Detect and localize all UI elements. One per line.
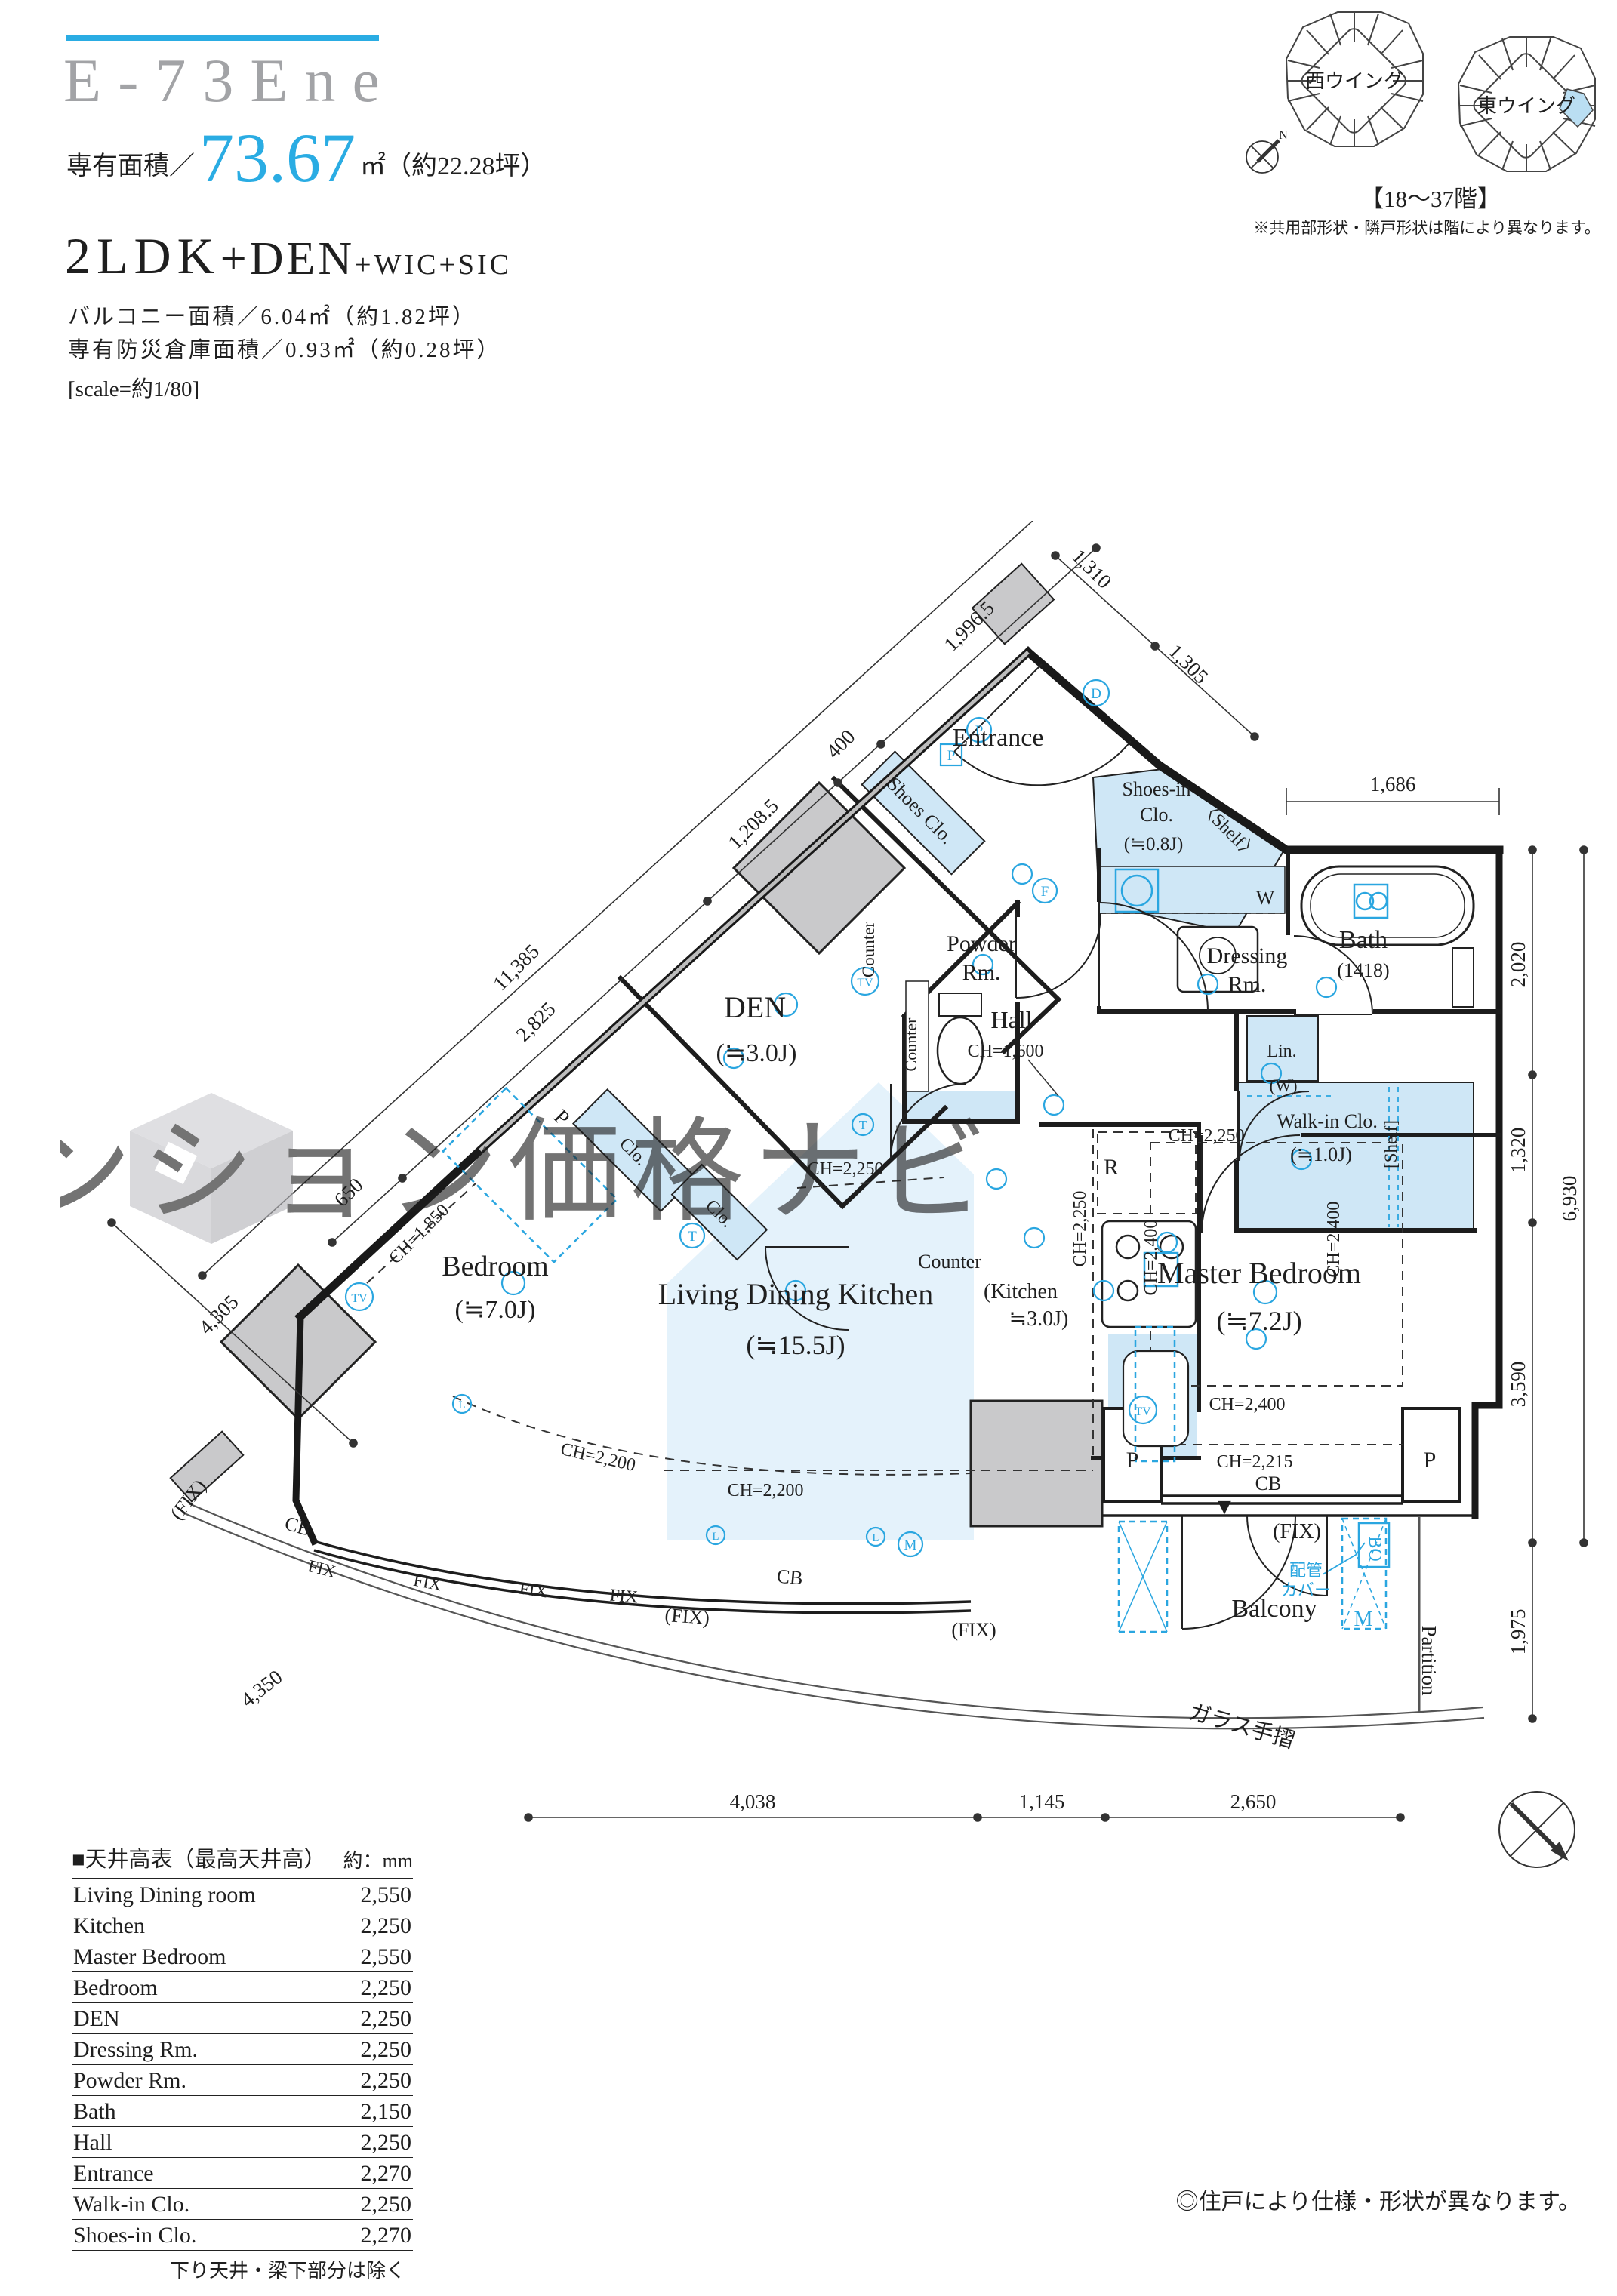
pipe-cover-label2: カバー [1281, 1580, 1331, 1599]
ch-hall: CH=1,600 [968, 1042, 1044, 1061]
keyplan-north-label: N [1279, 129, 1288, 142]
table-row: Shoes-in Clo.2,270 [72, 2220, 413, 2251]
pipe-cover-label: 配管 [1289, 1561, 1323, 1580]
dim-1310: 1,310 [1067, 545, 1116, 593]
row-label: Walk-in Clo. [73, 2192, 189, 2217]
dim-4038: 4,038 [730, 1790, 776, 1813]
east-wing-label: 東ウイング [1477, 95, 1575, 117]
ldk-label: Living Dining Kitchen [658, 1277, 933, 1311]
table-title: ■天井高表（最高天井高） [72, 1842, 326, 1873]
walk-in-clo-size: (≒1.0J) [1290, 1143, 1352, 1165]
m-circle-icon: M [904, 1537, 917, 1553]
fix-window: FIX [518, 1579, 549, 1602]
master-bedroom-size: (≒7.2J) [1216, 1306, 1301, 1336]
bath-size-label: (1418) [1337, 959, 1389, 981]
table-row: DEN2,250 [72, 2003, 413, 2034]
ceiling-height-table: ■天井高表（最高天井高） 約：mm Living Dining room2,55… [72, 1840, 413, 2283]
row-value: 2,550 [361, 1882, 412, 1907]
bedroom-label: Bedroom [442, 1251, 548, 1282]
dim-2825: 2,825 [512, 998, 560, 1046]
table-row: Bath2,150 [72, 2096, 413, 2127]
fix-window: FIX [306, 1556, 337, 1581]
ch-ldk: CH=2,200 [728, 1481, 804, 1500]
t-circle-icon: T [688, 1229, 697, 1245]
l-icon: L [458, 1399, 465, 1411]
ldk-size-label: (≒15.5J) [746, 1330, 845, 1360]
powder-counter-label: Counter [901, 1017, 920, 1072]
fix-window: (FIX) [951, 1619, 996, 1641]
cb-mark: CB [776, 1565, 804, 1590]
ch-master-right: CH=2,400 [1324, 1202, 1344, 1278]
ch-bedroom: CH=2,200 [559, 1439, 637, 1476]
row-label: Bedroom [73, 1975, 158, 2000]
bo-label: BO [1365, 1536, 1384, 1561]
dressing-room-label: Dressing [1207, 943, 1288, 968]
row-label: Shoes-in Clo. [73, 2223, 196, 2248]
ch-master-low: CH=2,215 [1217, 1452, 1293, 1472]
den-counter-label: Counter [859, 922, 878, 977]
fix-window: (FIX) [1273, 1520, 1321, 1543]
pillar-mark: P [1126, 1448, 1139, 1473]
balcony-area-line: バルコニー面積／6.04㎡（約1.82坪） [68, 299, 476, 331]
row-value: 2,250 [361, 2037, 412, 2062]
partition-label: Partition [1418, 1626, 1440, 1696]
walk-in-closet [1238, 1082, 1474, 1229]
row-label: Hall [73, 2130, 112, 2155]
compass-icon [1499, 1792, 1575, 1867]
pillar-mark: P [1424, 1448, 1437, 1473]
pillar [971, 1401, 1102, 1526]
table-row: Bedroom2,250 [72, 1972, 413, 2003]
shelf-sq-label: [Shelf] [1381, 1120, 1400, 1168]
bath-label: Bath [1339, 926, 1388, 954]
ldk-counter-label: Counter [918, 1251, 981, 1273]
l-icon: L [872, 1532, 879, 1544]
tv-icon: TV [351, 1292, 368, 1305]
dim-1686: 1,686 [1370, 773, 1416, 796]
area-value: 73.67 [199, 127, 356, 189]
dim-3590: 3,590 [1507, 1362, 1529, 1408]
row-value: 2,250 [361, 2068, 412, 2093]
area-label: 専有面積／ [66, 145, 195, 189]
table-header: ■天井高表（最高天井高） 約：mm [72, 1840, 413, 1879]
kitchen-sink [1123, 1351, 1188, 1446]
ch-master-left: CH=2,400 [1141, 1220, 1161, 1296]
tv-icon: TV [1135, 1405, 1151, 1418]
powder-room-label: Powder [947, 931, 1016, 956]
bedroom-size-label: (≒7.0J) [455, 1296, 536, 1324]
shoes-in-clo-size: (≒0.8J) [1124, 834, 1184, 854]
layout-plus-den: +DEN [220, 232, 355, 286]
entrance-label: Entrance [953, 724, 1044, 752]
table-row: Walk-in Clo.2,250 [72, 2189, 413, 2220]
layout-line: 2LDK +DEN +WIC+SIC [65, 226, 512, 286]
dim-1320: 1,320 [1507, 1128, 1529, 1174]
layout-main: 2LDK [65, 226, 220, 286]
row-label: Dressing Rm. [73, 2037, 198, 2062]
row-label: Kitchen [73, 1913, 145, 1938]
row-value: 2,250 [361, 2192, 412, 2217]
row-label: Powder Rm. [73, 2068, 186, 2093]
table-row: Kitchen2,250 [72, 1910, 413, 1941]
dim-400: 400 [822, 725, 860, 763]
footer-note: ◎住戸により仕様・形状が異なります。 [1176, 2183, 1581, 2216]
den-label: DEN [724, 990, 786, 1024]
dim-total-left: 11,385 [488, 940, 544, 995]
kitchen-size-label: ≒3.0J) [1009, 1307, 1069, 1331]
floor-plan: 湾岸マンション価格ナビ P P D F M T T TV TV TV L L L… [60, 521, 1608, 1872]
cb-mark: CB [1255, 1473, 1282, 1494]
row-label: Bath [73, 2099, 116, 2124]
walk-in-clo-label: Walk-in Clo. [1277, 1110, 1378, 1132]
dim-2020: 2,020 [1507, 942, 1529, 988]
row-value: 2,250 [361, 1975, 412, 2000]
area-unit: ㎡（約22.28坪） [360, 145, 547, 189]
refrigerator-label: R [1104, 1155, 1119, 1180]
dim-1145: 1,145 [1019, 1790, 1065, 1813]
dim-1305: 1,305 [1164, 640, 1212, 688]
row-value: 2,250 [361, 2130, 412, 2155]
row-label: Living Dining room [73, 1882, 256, 1907]
table-row: Dressing Rm.2,250 [72, 2034, 413, 2065]
f-circle-icon: F [1041, 884, 1049, 900]
t-circle-icon: T [859, 1118, 867, 1132]
row-value: 2,270 [361, 2161, 412, 2186]
linen-label: Lin. [1267, 1042, 1296, 1061]
row-label: Entrance [73, 2161, 154, 2186]
dressing-room-label2: Rm. [1228, 972, 1267, 997]
den-size-label: (≒3.0J) [716, 1039, 797, 1067]
scale-line: [scale=約1/80] [68, 371, 199, 403]
floors-label: 【18〜37階】 [1253, 180, 1608, 214]
unit-number: E-73Ene [63, 45, 396, 116]
entry-triangle: ▼ [1213, 1494, 1236, 1519]
row-label: DEN [73, 2006, 120, 2031]
layout-plus-wic-sic: +WIC+SIC [355, 248, 512, 286]
d-circle-icon: D [1091, 686, 1101, 702]
ch-kitchen: CH=2,250 [1070, 1191, 1090, 1267]
table-row: Entrance2,270 [72, 2158, 413, 2189]
row-value: 2,150 [361, 2099, 412, 2124]
toilet-tank [939, 993, 981, 1016]
fix-window: FIX [609, 1585, 639, 1606]
shoes-in-clo-label2: Clo. [1140, 804, 1173, 826]
keyplan-compass-icon [1246, 140, 1279, 173]
glass-rail-label: ガラス手摺 [1186, 1699, 1298, 1753]
row-value: 2,270 [361, 2223, 412, 2248]
powder-room-label2: Rm. [962, 960, 1001, 985]
w-label: W [1256, 887, 1275, 909]
west-wing-label: 西ウイング [1305, 70, 1403, 92]
table-row: Living Dining room2,550 [72, 1879, 413, 1910]
shoes-in-clo-label: Shoes-in [1123, 778, 1191, 800]
hall-label: Hall [990, 1006, 1032, 1033]
table-unit: 約：mm [343, 1845, 413, 1873]
dim-total-right: 6,930 [1558, 1176, 1581, 1222]
wing-keyplans: 西ウイング 東ウイング N [1223, 0, 1617, 177]
dim-4350: 4,350 [236, 1665, 286, 1711]
table-row: Powder Rm.2,250 [72, 2065, 413, 2096]
dim-1975: 1,975 [1507, 1609, 1529, 1655]
dim-2650: 2,650 [1230, 1790, 1277, 1813]
table-footnote: 下り天井・梁下部分は除く [72, 2251, 413, 2283]
row-value: 2,250 [361, 1913, 412, 1938]
ch-master-bottom: CH=2,400 [1209, 1395, 1286, 1414]
wing-note: ※共用部形状・隣戸形状は階により異なります。 [1238, 216, 1615, 239]
w-paren-label: (W) [1269, 1076, 1297, 1095]
row-value: 2,550 [361, 1944, 412, 1969]
fix-window: (FIX) [664, 1604, 710, 1629]
exclusive-area-line: 専有面積／ 73.67 ㎡（約22.28坪） [66, 127, 547, 189]
row-value: 2,250 [361, 2006, 412, 2031]
floorplan-page: { "header": { "unit_no": "E-73Ene", "are… [0, 0, 1617, 2296]
table-row: Hall2,250 [72, 2127, 413, 2158]
accent-bar [66, 35, 379, 41]
storage-area-line: 専有防災倉庫面積／0.93㎡（約0.28坪） [68, 332, 501, 364]
meter-label: M [1354, 1608, 1373, 1631]
row-label: Master Bedroom [73, 1944, 226, 1969]
bath-counter [1452, 948, 1474, 1007]
table-row: Master Bedroom2,550 [72, 1941, 413, 1972]
l-icon: L [712, 1531, 719, 1543]
ch-master-top: CH=2,250 [1169, 1126, 1245, 1146]
ch-den: CH=2,250 [808, 1159, 884, 1179]
kitchen-label: (Kitchen [984, 1280, 1058, 1303]
tv-icon: TV [857, 977, 873, 989]
